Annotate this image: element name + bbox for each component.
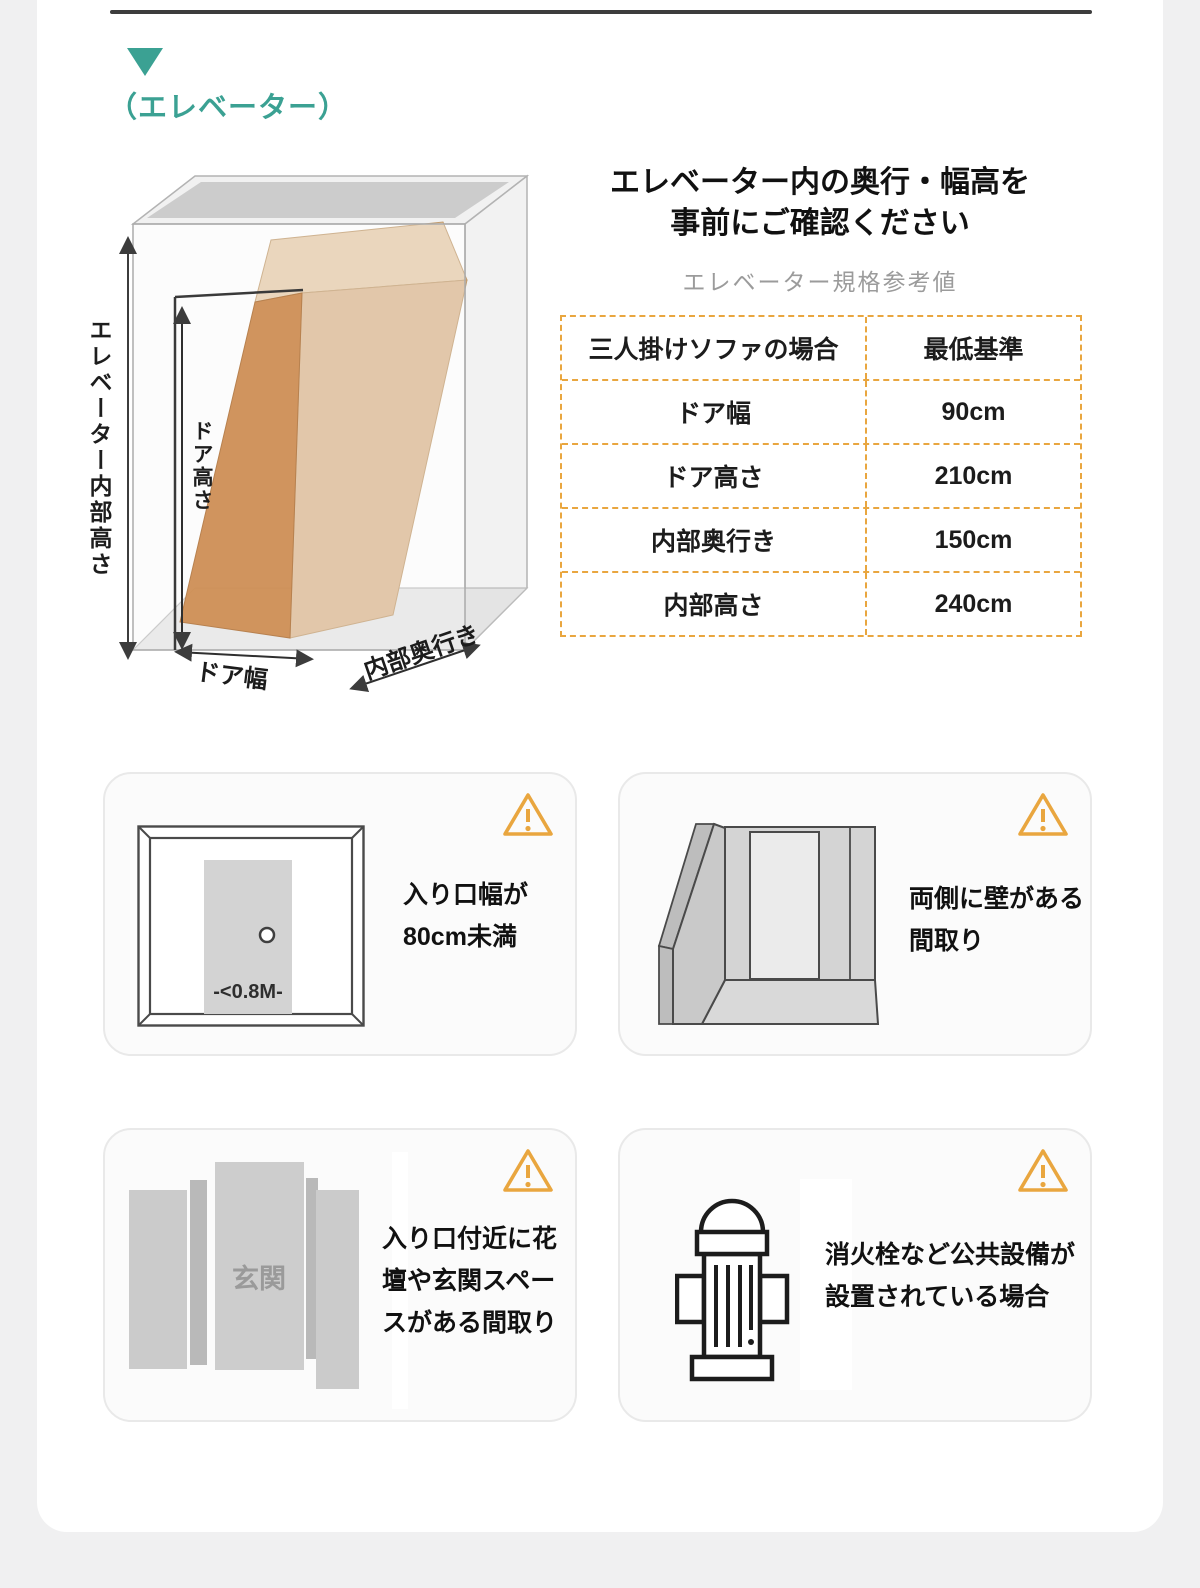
warning-card-entrance-space: 玄関 入り口付近に花 壇や玄関スペー スがある間取り [103,1128,577,1422]
left-wall-foot [659,946,673,1024]
spec-row-label: 内部高さ [562,573,865,635]
spec-row-value: 210cm [865,445,1080,507]
door-height-label: ドア高さ [186,420,216,512]
spec-row-label: ドア幅 [562,381,865,443]
elevator-side-face [465,176,527,650]
spec-row-value: 240cm [865,573,1080,635]
spec-header-case: 三人掛けソファの場合 [562,317,865,379]
warning-card-walls-both-sides: 両側に壁がある 間取り [618,772,1092,1056]
warning-card-text: 両側に壁がある 間取り [909,878,1084,962]
narrow-door-diagram: -<0.8M- [137,825,365,1027]
elevator-ceiling [147,182,509,218]
warning-text-line: 消火栓など公共設備が [825,1234,1075,1276]
section-title: （エレベーター） [108,84,348,126]
spec-row-label: 内部奥行き [562,509,865,571]
warning-icon [501,1146,555,1196]
floorplan-left-connector [190,1180,207,1365]
notice-block: エレベーター内の奥行・幅高を 事前にご確認ください エレベーター規格参考値 [540,162,1100,297]
warning-text-line: スがある間取り [382,1302,557,1344]
warning-text-line: 両側に壁がある [909,878,1084,920]
notice-title-line1: エレベーター内の奥行・幅高を [540,162,1100,203]
warning-card-public-facilities: 消火栓など公共設備が 設置されている場合 [618,1128,1092,1422]
down-triangle-icon [127,48,163,76]
spec-header-minimum: 最低基準 [865,317,1080,379]
table-row: 内部高さ 240cm [562,571,1080,635]
door-width-measure-label: -<0.8M- [213,981,282,1003]
spec-table-header-row: 三人掛けソファの場合 最低基準 [562,317,1080,379]
top-divider [110,10,1092,14]
table-row: ドア幅 90cm [562,379,1080,443]
spec-row-label: ドア高さ [562,445,865,507]
page: （エレベーター） エレベーター内部高さ ドア高さ ドア幅 内部奥行き エ [0,0,1200,1588]
table-row: ドア高さ 210cm [562,443,1080,507]
corridor-floor [702,980,878,1024]
warning-icon [501,790,555,840]
warning-icon [1016,1146,1070,1196]
spec-row-value: 90cm [865,381,1080,443]
warning-card-text: 入り口幅が 80cm未満 [403,874,528,958]
warning-text-line: 設置されている場合 [825,1276,1075,1318]
warning-card-text: 消火栓など公共設備が 設置されている場合 [825,1234,1075,1318]
warning-text-line: 入り口幅が [403,874,528,916]
warning-text-line: 間取り [909,920,1084,962]
warning-text-line: 壇や玄関スペー [382,1260,557,1302]
warning-icon [1016,790,1070,840]
table-row: 内部奥行き 150cm [562,507,1080,571]
spec-table: 三人掛けソファの場合 最低基準 ドア幅 90cm ドア高さ 210cm 内部奥行… [560,315,1082,637]
floorplan-right-block [316,1190,359,1389]
spec-row-value: 150cm [865,509,1080,571]
genkan-label: 玄関 [232,1263,286,1294]
warning-card-narrow-entrance: -<0.8M- 入り口幅が 80cm未満 [103,772,577,1056]
warning-text-line: 入り口付近に花 [382,1218,557,1260]
corridor-door [750,832,819,979]
inner-height-label: エレベーター内部高さ [82,318,116,578]
warning-text-line: 80cm未満 [403,916,528,958]
door-knob [260,928,274,942]
warning-card-text: 入り口付近に花 壇や玄関スペー スがある間取り [382,1218,557,1344]
floorplan-left-block [129,1190,187,1369]
notice-title-line2: 事前にご確認ください [540,203,1100,244]
notice-title: エレベーター内の奥行・幅高を 事前にご確認ください [540,162,1100,244]
notice-subtitle: エレベーター規格参考値 [540,263,1100,297]
corridor-diagram [652,822,897,1027]
